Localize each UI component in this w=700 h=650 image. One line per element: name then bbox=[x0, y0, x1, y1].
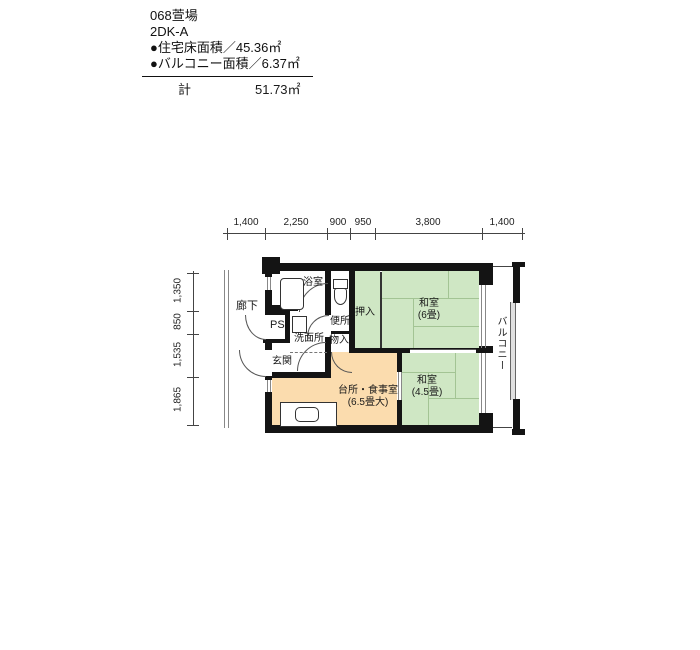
balcony-area-line: ●バルコニー面積／6.37㎡ bbox=[150, 56, 300, 72]
kitchen-window bbox=[267, 380, 268, 392]
dim-tick bbox=[187, 334, 199, 335]
dim-tick bbox=[522, 228, 523, 240]
washroom-door-arc bbox=[297, 342, 326, 371]
balcony-label: バルコニー bbox=[495, 316, 506, 371]
kitchen-label: 台所・食事室 (6.5畳大) bbox=[328, 385, 408, 409]
balcony-edge-line bbox=[493, 266, 512, 267]
dim-top-5: 3,800 bbox=[403, 217, 453, 228]
floor-area-line: ●住宅床面積／45.36㎡ bbox=[150, 40, 300, 56]
bathtub bbox=[280, 278, 304, 310]
storage-label: 物入 bbox=[329, 335, 349, 346]
total-rule bbox=[142, 76, 313, 77]
washitsu6-name: 和室 bbox=[399, 298, 459, 310]
tatami-line bbox=[448, 271, 449, 298]
washroom-label: 洗面所 bbox=[294, 333, 324, 344]
dim-left-3: 1,535 bbox=[173, 335, 184, 375]
closet-fusuma-line bbox=[380, 272, 382, 348]
total-value: 51.73㎡ bbox=[255, 79, 301, 98]
wall-ps bbox=[263, 339, 290, 343]
header-block: 068萱場 2DK-A ●住宅床面積／45.36㎡ ●バルコニー面積／6.37㎡ bbox=[150, 8, 300, 72]
bath-label: 浴室 bbox=[303, 277, 323, 288]
dim-tick bbox=[187, 273, 199, 274]
balcony-bracket-bottom bbox=[513, 399, 520, 431]
tatami-line bbox=[413, 326, 479, 327]
closet-label: 押入 bbox=[355, 307, 375, 318]
property-title: 068萱場 bbox=[150, 8, 300, 24]
wall-toilet-storage bbox=[331, 331, 349, 334]
corridor-label: 廊下 bbox=[236, 301, 258, 312]
washbasin bbox=[292, 316, 307, 333]
total-label: 計 bbox=[178, 79, 191, 98]
bath-window bbox=[270, 277, 271, 290]
dim-tick bbox=[187, 425, 199, 426]
toilet-label: 便所 bbox=[330, 316, 350, 327]
dim-tick bbox=[187, 377, 199, 378]
kitchen-name: 台所・食事室 bbox=[328, 385, 408, 397]
wall-top bbox=[265, 263, 493, 271]
bath-window bbox=[267, 277, 268, 290]
floorplan-page: 068萱場 2DK-A ●住宅床面積／45.36㎡ ●バルコニー面積／6.37㎡… bbox=[0, 0, 700, 650]
wall-left bbox=[265, 392, 272, 432]
dim-line-left bbox=[193, 271, 194, 426]
dim-tick bbox=[187, 311, 199, 312]
kitchen-sink bbox=[295, 407, 319, 422]
dim-tick bbox=[482, 228, 483, 240]
entrance-door-arc bbox=[239, 350, 266, 377]
wall-entrance-kitchen bbox=[272, 372, 331, 378]
balcony-bracket-bottom bbox=[512, 429, 525, 435]
dim-tick bbox=[265, 228, 266, 240]
wall-left bbox=[265, 263, 272, 277]
wall-kitchen-washitsu bbox=[397, 352, 402, 372]
dim-tick bbox=[327, 228, 328, 240]
toilet-bowl bbox=[334, 288, 347, 305]
washitsu6-label: 和室 (6畳) bbox=[399, 298, 459, 322]
wall-right-block bbox=[479, 263, 493, 285]
dim-tick bbox=[227, 228, 228, 240]
dim-line-top bbox=[223, 233, 525, 234]
dim-top-1: 1,400 bbox=[221, 217, 271, 228]
entrance-label: 玄関 bbox=[272, 356, 292, 367]
dim-top-6: 1,400 bbox=[477, 217, 527, 228]
balcony-railing bbox=[510, 302, 516, 400]
dim-tick bbox=[350, 228, 351, 240]
corridor-edge-line bbox=[228, 270, 229, 428]
balcony-bracket-top bbox=[513, 266, 520, 303]
balcony-edge-line bbox=[493, 427, 512, 428]
kitchen-size: (6.5畳大) bbox=[328, 397, 408, 409]
ps-door-arc bbox=[245, 315, 266, 340]
pipe-shaft-label: PS bbox=[270, 320, 285, 331]
dim-left-4: 1,865 bbox=[173, 380, 184, 420]
washitsu6-size: (6畳) bbox=[399, 310, 459, 322]
dim-tick bbox=[375, 228, 376, 240]
wall-right-block bbox=[479, 413, 493, 433]
kitchen-window bbox=[270, 380, 271, 392]
entrance-step-line bbox=[290, 352, 327, 353]
fusuma-slit bbox=[410, 349, 476, 353]
dim-top-4: 950 bbox=[338, 217, 388, 228]
corridor-edge-line bbox=[224, 270, 225, 428]
plan-type: 2DK-A bbox=[150, 24, 300, 40]
